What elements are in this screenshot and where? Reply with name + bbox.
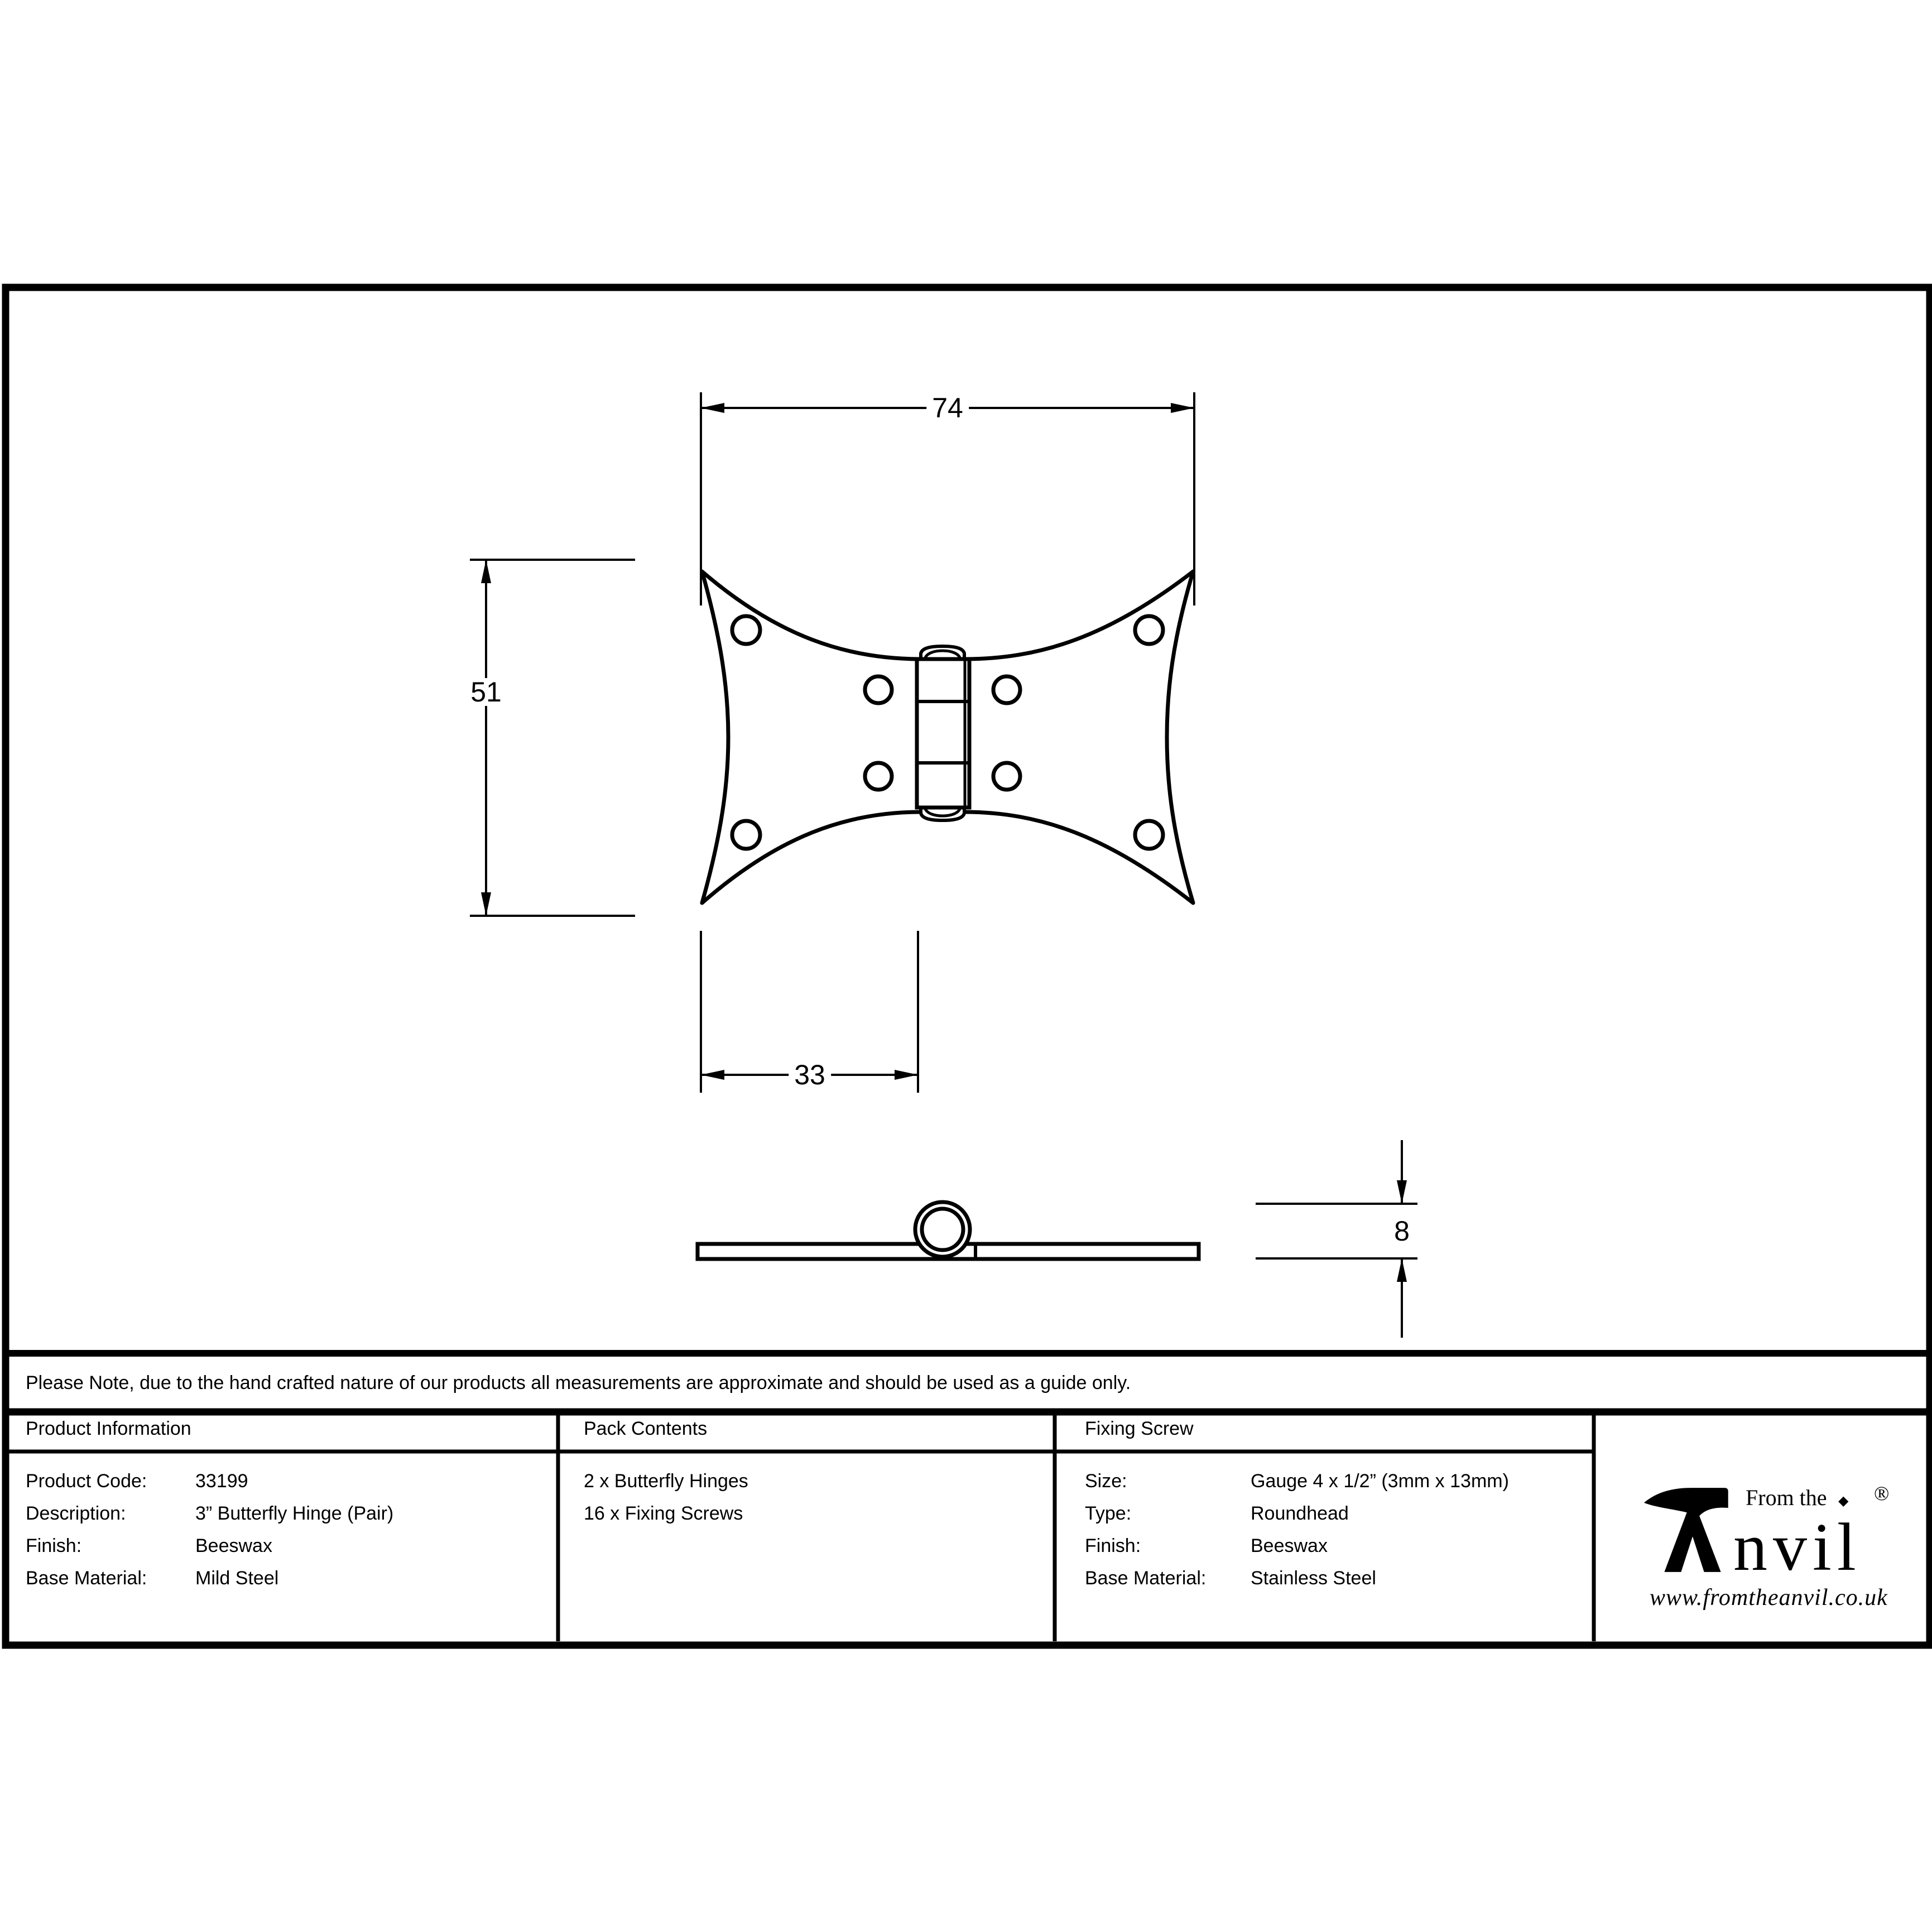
row-value: Beeswax: [195, 1535, 272, 1556]
screw-hole-inner-top-left: [865, 676, 892, 703]
row-label: Base Material:: [26, 1567, 195, 1589]
brand-tagline: From the: [1746, 1487, 1827, 1509]
table-row: Base Material:Mild Steel: [26, 1567, 278, 1589]
dim-width-label: 74: [926, 394, 969, 422]
row-label: Type:: [1085, 1502, 1251, 1525]
registered-mark-icon: ®: [1874, 1483, 1889, 1503]
sheet-frame: [6, 287, 1930, 1645]
row-label: Finish:: [1085, 1535, 1251, 1557]
table-grid: [6, 1353, 1930, 1641]
row-value: Beeswax: [1251, 1535, 1328, 1556]
handcrafted-note: Please Note, due to the hand crafted nat…: [26, 1372, 1131, 1394]
row-value: Mild Steel: [195, 1568, 278, 1589]
table-row: Type:Roundhead: [1085, 1502, 1349, 1525]
anvil-logo-icon: [1643, 1484, 1742, 1576]
dim-thickness-label: 8: [1388, 1217, 1415, 1245]
screw-hole-corner-bottom-right: [1135, 821, 1163, 849]
brand-name: nvil: [1733, 1513, 1862, 1582]
table-row: Product Code:33199: [26, 1470, 248, 1492]
row-value: 3” Butterfly Hinge (Pair): [195, 1503, 393, 1524]
dim-inner-width-label: 33: [789, 1061, 831, 1089]
diamond-separator-icon: ◆: [1838, 1494, 1848, 1508]
row-value: Roundhead: [1251, 1503, 1349, 1524]
screw-hole-corner-top-right: [1135, 616, 1163, 644]
screw-hole-inner-bottom-right: [993, 763, 1020, 790]
row-value: Stainless Steel: [1251, 1568, 1376, 1589]
pack-contents-item: 16 x Fixing Screws: [584, 1502, 743, 1525]
screw-hole-inner-bottom-left: [865, 763, 892, 790]
row-value: Gauge 4 x 1/2” (3mm x 13mm): [1251, 1470, 1509, 1492]
table-row: Finish:Beeswax: [1085, 1535, 1328, 1557]
row-label: Finish:: [26, 1535, 195, 1557]
screw-hole-corner-bottom-left: [732, 821, 760, 849]
header-pack-contents: Pack Contents: [584, 1417, 707, 1440]
table-row: Finish:Beeswax: [26, 1535, 272, 1557]
dimension-width-74: [701, 392, 1194, 605]
row-label: Description:: [26, 1502, 195, 1525]
brand-url: www.fromtheanvil.co.uk: [1650, 1586, 1888, 1609]
header-fixing-screw: Fixing Screw: [1085, 1417, 1194, 1440]
pack-contents-item: 2 x Butterfly Hinges: [584, 1470, 748, 1492]
dim-height-label: 51: [465, 678, 507, 706]
plan-view: [702, 571, 1193, 903]
screw-hole-inner-top-right: [993, 676, 1020, 703]
row-value: 33199: [195, 1470, 248, 1492]
hinge-barrel: [917, 646, 969, 820]
row-label: Product Code:: [26, 1470, 195, 1492]
screw-hole-corner-top-left: [732, 616, 760, 644]
technical-drawing: [0, 0, 1932, 1932]
table-row: Base Material:Stainless Steel: [1085, 1567, 1376, 1589]
spec-sheet-page: 74 51 33 8 Please Note, due to the hand …: [0, 0, 1932, 1932]
side-view: [698, 1202, 1199, 1259]
row-label: Size:: [1085, 1470, 1251, 1492]
dimension-height-51: [470, 560, 635, 916]
header-product-information: Product Information: [26, 1417, 191, 1440]
table-row: Description:3” Butterfly Hinge (Pair): [26, 1502, 393, 1525]
table-row: Size:Gauge 4 x 1/2” (3mm x 13mm): [1085, 1470, 1509, 1492]
row-label: Base Material:: [1085, 1567, 1251, 1589]
